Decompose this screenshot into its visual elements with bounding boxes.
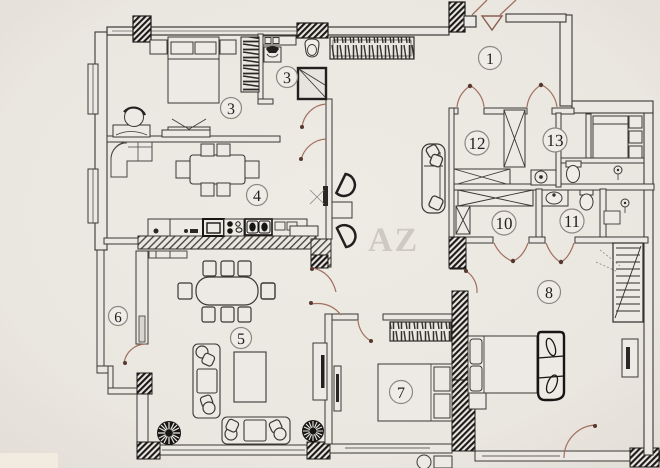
- svg-text:3: 3: [283, 70, 291, 87]
- svg-text:8: 8: [545, 285, 553, 302]
- svg-text:13: 13: [547, 131, 564, 150]
- svg-text:11: 11: [564, 212, 580, 231]
- svg-text:10: 10: [496, 214, 513, 233]
- svg-text:12: 12: [469, 134, 486, 153]
- svg-text:7: 7: [397, 385, 405, 402]
- svg-text:3: 3: [227, 101, 235, 118]
- svg-text:5: 5: [237, 331, 245, 348]
- svg-text:6: 6: [114, 310, 122, 326]
- svg-text:AZ: AZ: [368, 222, 419, 259]
- svg-text:1: 1: [486, 51, 494, 68]
- svg-text:4: 4: [253, 188, 261, 205]
